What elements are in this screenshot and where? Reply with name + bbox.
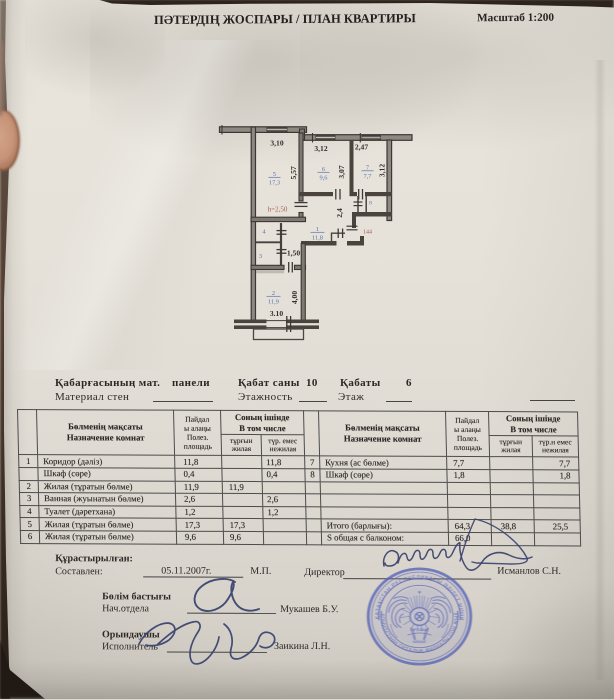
svg-text:КӨКШЕ: КӨКШЕ (413, 640, 427, 644)
svg-text:ОРТАЛЫҚ: ОРТАЛЫҚ (411, 628, 427, 632)
